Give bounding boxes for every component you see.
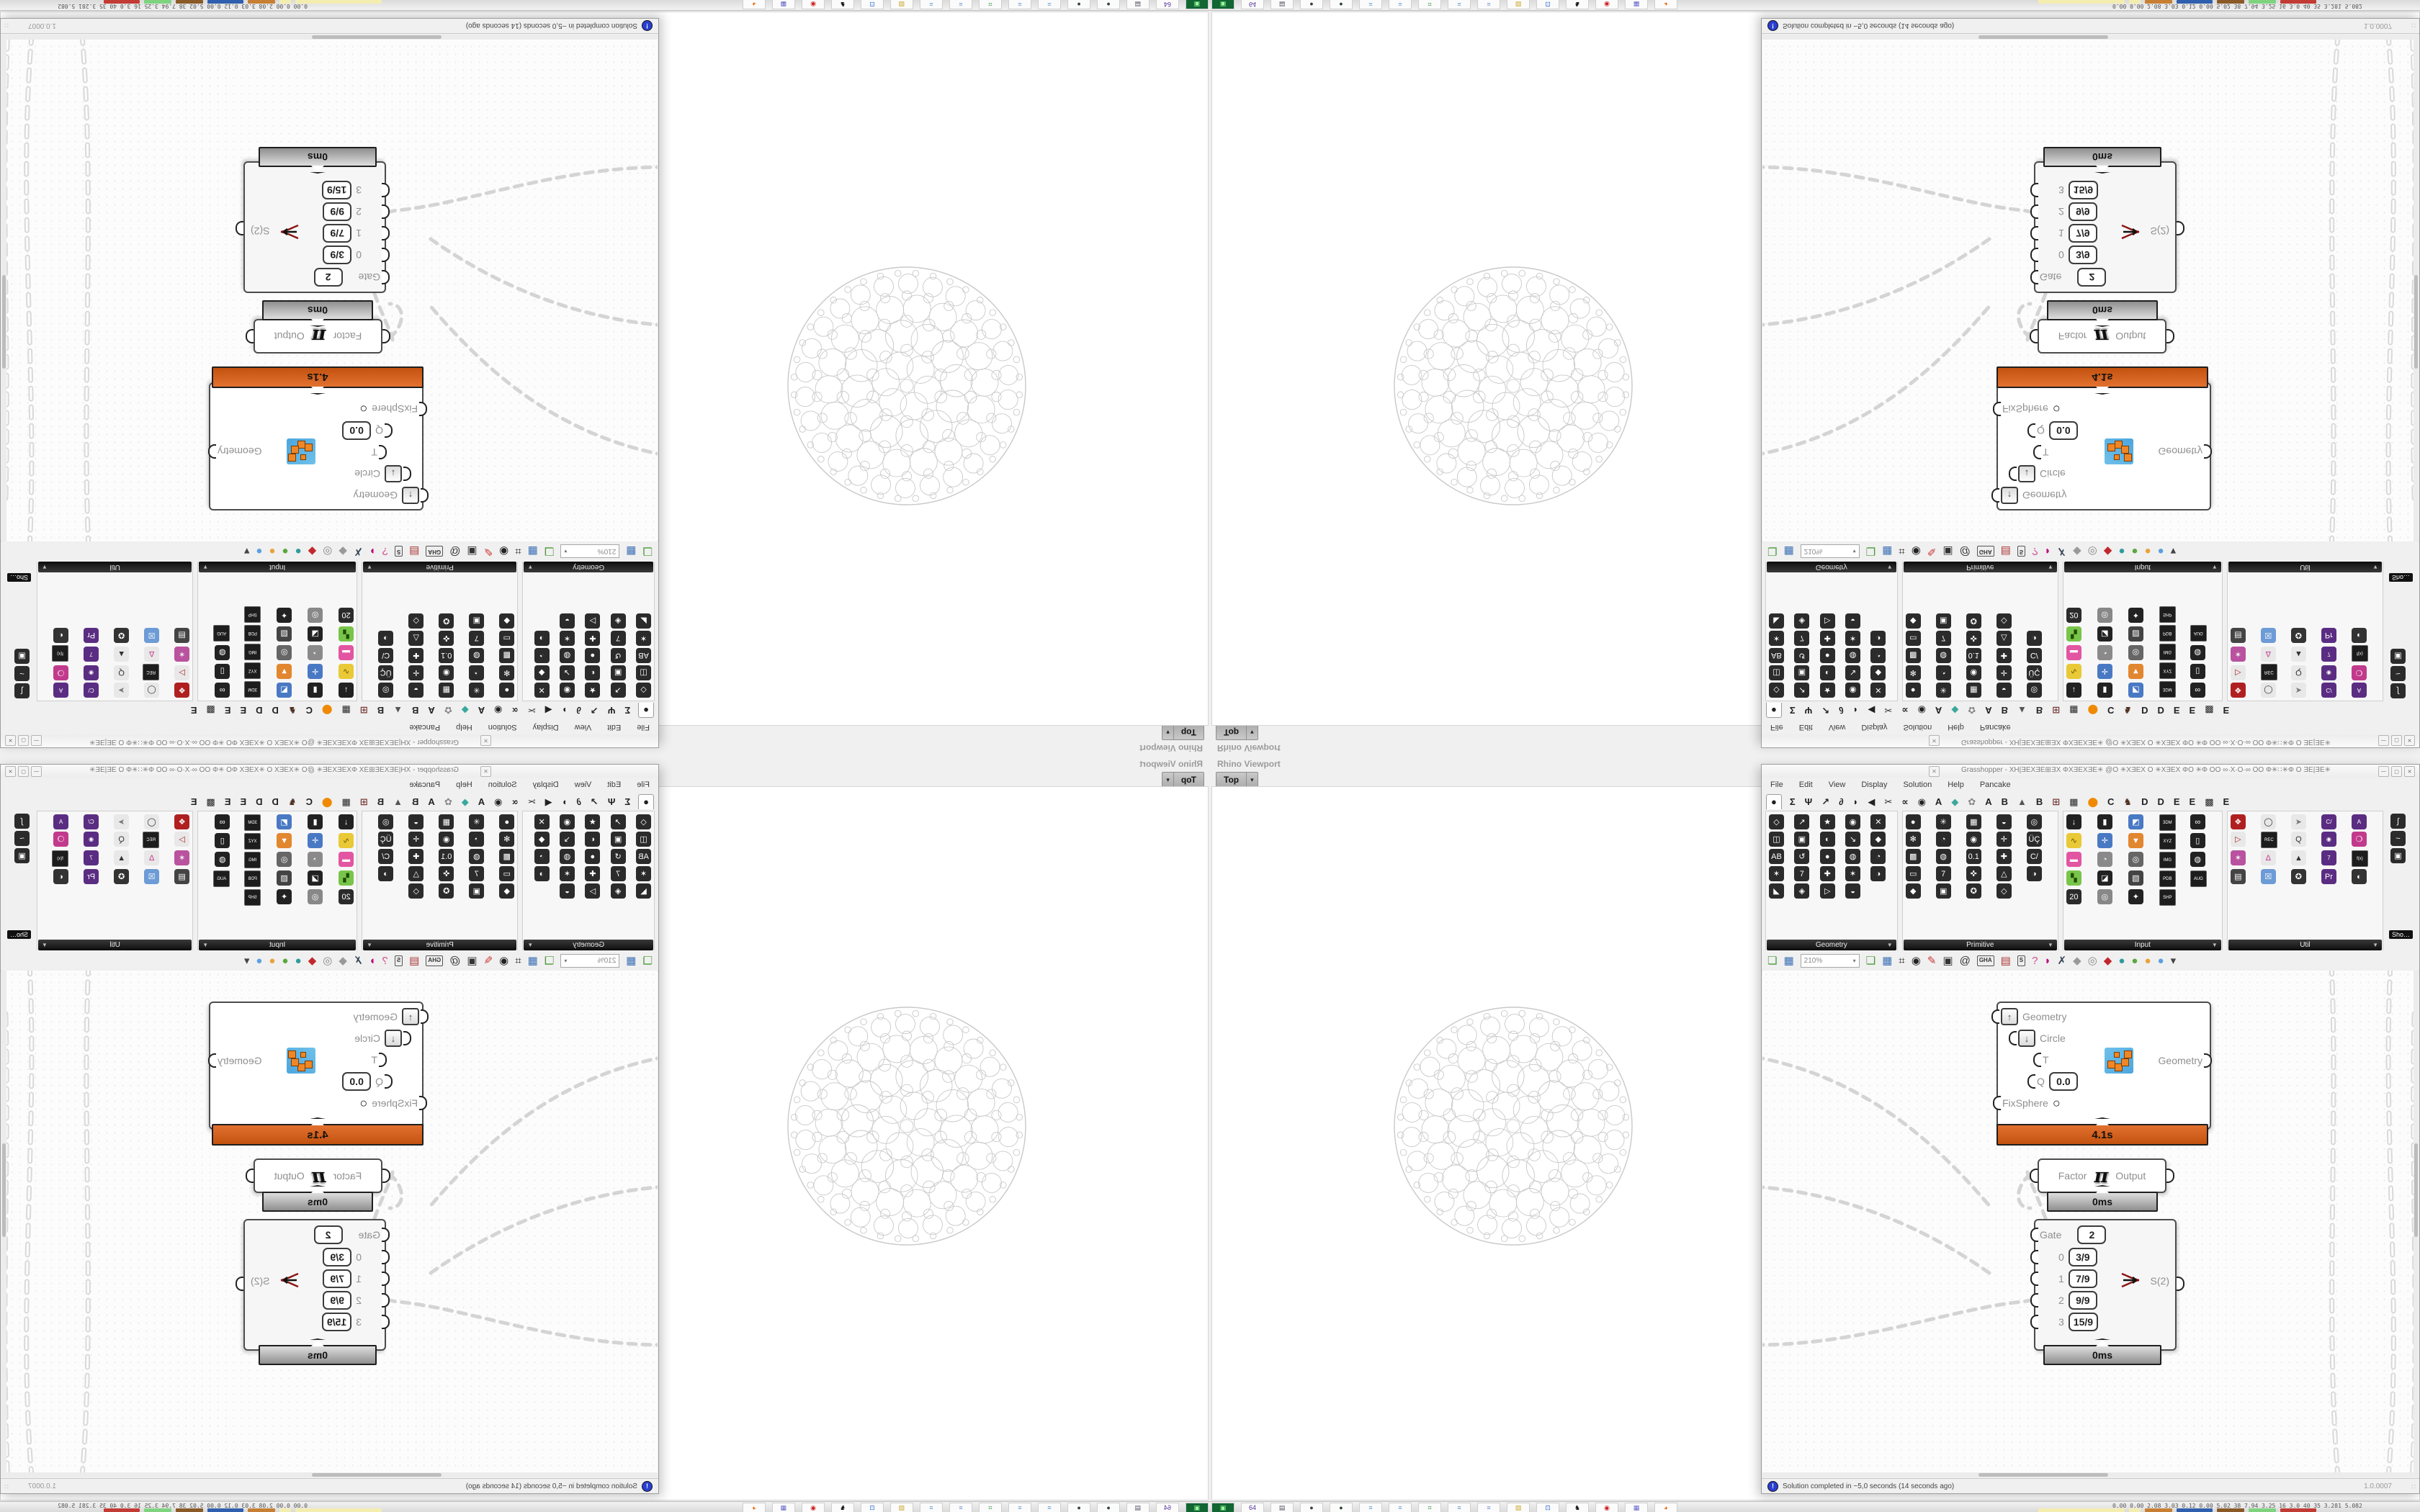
menu-item[interactable]: Solution xyxy=(488,780,517,789)
component-icon[interactable]: ● xyxy=(585,849,600,864)
component-icon[interactable]: Δ xyxy=(2261,647,2276,662)
gate-fraction-box[interactable]: 3/9 xyxy=(323,1248,351,1266)
component-icon[interactable]: ▣ xyxy=(611,832,626,847)
gate-input-row[interactable]: 3 15/9 xyxy=(2058,179,2175,201)
component-icon[interactable]: ❖ xyxy=(2231,683,2246,698)
chevron-down-icon[interactable]: ▼ xyxy=(527,564,533,570)
component-icon[interactable]: PDB xyxy=(244,870,261,887)
component-tab[interactable]: B xyxy=(2035,703,2044,717)
component-icon[interactable]: ✻ xyxy=(499,665,514,680)
viewport-tab-label[interactable]: Top xyxy=(1174,727,1204,737)
component-icon[interactable]: ◇ xyxy=(1769,814,1784,829)
taskbar-app-icon[interactable]: ▤ xyxy=(1126,1503,1149,1512)
component-icon[interactable]: ◉ xyxy=(439,832,454,847)
component-tab[interactable]: ◉ xyxy=(493,795,503,809)
component-icon[interactable]: ◫ xyxy=(636,665,651,680)
component-icon[interactable]: ∫ xyxy=(2390,683,2406,698)
component-icon[interactable]: ▚ xyxy=(2066,870,2081,886)
component-icon[interactable]: ✶ xyxy=(1769,631,1784,646)
taskbar-app-icon[interactable]: ▨ xyxy=(1507,0,1530,9)
gate-input-row[interactable]: 3 15/9 xyxy=(245,1311,362,1333)
taskbar-app-icon[interactable]: ▦ xyxy=(1625,0,1648,9)
component-icon[interactable]: 7 xyxy=(2321,647,2336,662)
palette-footer[interactable]: Geometry ▼ xyxy=(524,562,653,572)
chevron-down-icon[interactable]: ▼ xyxy=(1887,564,1893,570)
component-icon[interactable]: ~ xyxy=(14,831,30,846)
component-tab[interactable]: ▲ xyxy=(392,795,404,809)
toolbar-icon[interactable]: ✗ xyxy=(354,546,363,557)
output-socket[interactable] xyxy=(208,1053,216,1068)
gate-header-row[interactable]: Gate 2 xyxy=(2040,266,2175,289)
component-icon[interactable]: ◔ xyxy=(1936,665,1951,680)
component-tab[interactable]: ∂ xyxy=(575,795,582,809)
taskbar-app-icon[interactable]: ◕ xyxy=(743,1503,766,1512)
menu-item[interactable]: Display xyxy=(1861,723,1887,732)
component-icon[interactable]: ◑ xyxy=(534,866,550,881)
chevron-down-icon[interactable]: ▾ xyxy=(1853,958,1856,964)
component-icon[interactable]: ▦ xyxy=(439,814,454,829)
component-icon[interactable]: ◎ xyxy=(378,683,393,698)
component-icon[interactable]: ▤ xyxy=(2231,628,2246,643)
component-tab[interactable]: ▦ xyxy=(2068,795,2079,809)
component-icon[interactable]: ◍ xyxy=(2190,852,2205,867)
component-tab[interactable]: D xyxy=(2140,795,2149,809)
component-tab[interactable]: ♞ xyxy=(287,703,298,717)
component-icon[interactable]: ✜ xyxy=(1966,631,1981,646)
component-tab[interactable]: D xyxy=(254,703,264,717)
component-icon[interactable]: ◈ xyxy=(611,613,626,629)
component-icon[interactable]: ◫ xyxy=(1769,665,1784,680)
component-tab[interactable]: E xyxy=(2172,795,2182,809)
component-tab[interactable]: A xyxy=(1984,703,1993,717)
component-icon[interactable]: ▤ xyxy=(174,628,189,643)
component-icon[interactable]: ▤ xyxy=(174,869,189,884)
input-socket[interactable] xyxy=(2030,1169,2038,1183)
close-icon[interactable]: ✕ xyxy=(480,735,491,746)
menu-item[interactable]: View xyxy=(575,780,592,789)
viewport-tab-label[interactable]: Top xyxy=(1216,775,1246,785)
input-socket[interactable] xyxy=(2030,204,2038,219)
palette-footer[interactable]: Input ▼ xyxy=(2064,940,2221,950)
component-icon[interactable]: XYZ xyxy=(2159,662,2176,679)
component-tab[interactable]: ◉ xyxy=(493,703,503,717)
menu-item[interactable]: Edit xyxy=(607,780,621,789)
component-icon[interactable]: 0.1 xyxy=(439,648,454,663)
maximize-icon[interactable]: ▢ xyxy=(18,735,29,746)
component-icon[interactable]: ▷ xyxy=(174,665,189,680)
taskbar-app-icon[interactable]: ⌗ xyxy=(979,0,1002,9)
toolbar-icon[interactable]: GHA xyxy=(1977,955,1994,966)
component-icon[interactable]: ✶ xyxy=(636,866,651,881)
toolbar-icon[interactable]: ● xyxy=(256,546,262,557)
taskbar-app-icon[interactable]: ♞ xyxy=(831,1503,854,1512)
input-socket[interactable] xyxy=(2009,1031,2017,1045)
toolbar-icon[interactable]: ? xyxy=(382,955,388,966)
taskbar-app-icon[interactable]: ● xyxy=(1330,0,1353,9)
component-input-row[interactable]: FixSphere ○ xyxy=(2002,1092,2210,1114)
menu-item[interactable]: Solution xyxy=(1903,780,1932,789)
toolbar-icon[interactable]: @ xyxy=(449,546,460,557)
component-tab[interactable]: E xyxy=(238,703,248,717)
taskbar-app-icon[interactable]: ◕ xyxy=(1654,1503,1677,1512)
component-tab[interactable]: B xyxy=(2000,795,2009,809)
component-output-row[interactable]: Geometry xyxy=(218,446,261,457)
component-icon[interactable]: ✻ xyxy=(1906,832,1921,847)
component-icon[interactable]: AUG xyxy=(2190,625,2207,642)
component-tab[interactable]: ⬤ xyxy=(2086,795,2099,809)
canvas-horizontal-scrollbar[interactable] xyxy=(1762,1472,2419,1477)
taskbar-app-icon[interactable]: 64 xyxy=(1241,1503,1264,1512)
component-icon[interactable]: ◔ xyxy=(469,665,484,680)
component-icon[interactable]: ➤ xyxy=(2291,683,2306,698)
component-icon[interactable]: ▷ xyxy=(174,832,189,847)
component-icon[interactable]: ◍ xyxy=(1845,849,1860,864)
minimize-icon[interactable]: — xyxy=(2378,735,2389,746)
component-icon[interactable]: ◍ xyxy=(560,648,575,663)
zoom-level-select[interactable]: 210% ▾ xyxy=(1801,954,1860,968)
component-tab[interactable]: A xyxy=(1984,795,1993,809)
component-tab[interactable]: ∝ xyxy=(1900,703,1909,717)
menu-item[interactable]: Solution xyxy=(488,723,517,732)
window-buttons[interactable]: —▢✕ xyxy=(2378,735,2415,746)
component-icon[interactable]: ◍ xyxy=(2190,645,2205,660)
component-tab[interactable]: B xyxy=(376,703,385,717)
component-icon[interactable]: ▣ xyxy=(14,649,30,664)
component-tab[interactable]: D xyxy=(254,795,264,809)
save-file-icon[interactable]: ▦ xyxy=(1783,546,1793,557)
toolbar-icon[interactable]: ▦ xyxy=(1882,955,1892,966)
component-icon[interactable]: 20 xyxy=(2066,889,2081,904)
component-icon[interactable]: ◉ xyxy=(1845,683,1860,698)
taskbar-app-icon[interactable]: ● xyxy=(1097,0,1120,9)
component-icon[interactable]: ▷ xyxy=(1820,613,1835,629)
component-icon[interactable]: ∿ xyxy=(339,833,354,848)
component-tab[interactable]: C xyxy=(305,703,314,717)
component-icon[interactable]: ▬ xyxy=(2066,645,2081,660)
palette-footer[interactable]: Geometry ▼ xyxy=(1767,940,1896,950)
taskbar-app-icon[interactable]: ≡ xyxy=(1359,0,1382,9)
component-icon[interactable]: ☒ xyxy=(144,869,159,884)
toolbar-icon[interactable]: ✎ xyxy=(1927,546,1937,557)
component-icon[interactable]: ▣ xyxy=(2390,848,2406,863)
component-tab[interactable]: ▲ xyxy=(2016,795,2028,809)
component-tab[interactable]: E xyxy=(2172,703,2182,717)
component-icon[interactable]: ▚ xyxy=(2066,626,2081,642)
menu-item[interactable]: Help xyxy=(1948,723,1964,732)
menu-item[interactable]: Display xyxy=(533,723,559,732)
close-icon[interactable]: ✕ xyxy=(2404,735,2415,746)
taskbar-app-icon[interactable]: ▦ xyxy=(772,1503,795,1512)
component-icon[interactable]: ◑ xyxy=(2027,866,2042,881)
gate-fraction-box[interactable]: 7/9 xyxy=(323,224,351,243)
toolbar-icon[interactable]: ✎ xyxy=(484,546,493,557)
component-icon[interactable]: ◎ xyxy=(378,814,393,829)
component-icon[interactable]: C/ xyxy=(378,648,393,663)
viewport-tab-top[interactable]: Top ▾ xyxy=(1216,724,1258,740)
component-icon[interactable]: 7 xyxy=(1794,631,1809,646)
component-icon[interactable]: ✚ xyxy=(408,648,423,663)
zoom-level-select[interactable]: 210% ▾ xyxy=(560,545,619,559)
menu-item[interactable]: Solution xyxy=(1903,723,1932,732)
taskbar-app-icon[interactable]: ▦ xyxy=(1625,1503,1648,1512)
component-icon[interactable]: SHP xyxy=(2159,606,2176,623)
component-icon[interactable]: ◆ xyxy=(534,832,550,847)
component-icon[interactable]: ◔ xyxy=(534,849,550,864)
component-tab[interactable]: A xyxy=(1934,795,1943,809)
component-icon[interactable]: ↘ xyxy=(560,665,575,680)
component-icon[interactable]: ✛ xyxy=(308,833,323,848)
component-icon[interactable]: ◐ xyxy=(1820,665,1835,680)
component-icon[interactable]: ✚ xyxy=(585,866,600,881)
component-icon[interactable]: ◑ xyxy=(2027,631,2042,646)
component-icon[interactable]: ▣ xyxy=(1936,883,1951,899)
component-icon[interactable]: △ xyxy=(408,631,423,646)
toolbar-icon[interactable]: ▤ xyxy=(409,546,419,557)
gate-value-box[interactable]: 2 xyxy=(2077,1225,2106,1244)
component-icon[interactable]: ~ xyxy=(2390,831,2406,846)
input-socket[interactable] xyxy=(2030,1228,2038,1242)
toolbar-icon[interactable]: ▦ xyxy=(1882,546,1892,557)
component-icon[interactable]: ▲ xyxy=(2291,850,2306,865)
component-icon[interactable]: IMG xyxy=(2159,852,2176,868)
component-icon[interactable]: 7 xyxy=(1794,866,1809,881)
gate-fraction-box[interactable]: 3/9 xyxy=(2069,1248,2097,1266)
component-icon[interactable]: 3DM xyxy=(2159,681,2176,698)
chevron-down-icon[interactable]: ▾ xyxy=(1853,549,1856,555)
component-icon[interactable]: ◔ xyxy=(308,645,323,660)
input-socket[interactable] xyxy=(1993,402,2001,416)
taskbar-app-icon[interactable]: ≡ xyxy=(1038,1503,1061,1512)
component-icon[interactable]: ● xyxy=(1820,849,1835,864)
taskbar-app-icon[interactable]: ≡ xyxy=(1477,0,1500,9)
input-socket[interactable] xyxy=(2030,183,2038,197)
component-tab[interactable]: Ψ xyxy=(1803,795,1814,809)
toolbar-icon[interactable]: ? xyxy=(382,546,388,557)
toolbar-icon[interactable]: ◆ xyxy=(2104,955,2112,966)
component-icon[interactable]: ✕ xyxy=(534,814,550,829)
component-icon[interactable]: ◉ xyxy=(439,665,454,680)
toolbar-icon[interactable]: ◎ xyxy=(2088,546,2097,557)
save-file-icon[interactable]: ▦ xyxy=(1783,955,1793,966)
toolbar-icon[interactable]: ✗ xyxy=(2058,955,2067,966)
component-icon[interactable]: Q xyxy=(2291,665,2306,680)
component-icon[interactable]: ↺ xyxy=(1794,849,1809,864)
grasshopper-titlebar[interactable]: ✕ Grasshopper - XH|ƎEXƎE⊞ƎX ΦXƎEXƎE✳ @O … xyxy=(1762,734,2419,747)
viewport-tab-top[interactable]: Top ▾ xyxy=(1162,724,1204,740)
component-icon[interactable]: ▯ xyxy=(2190,664,2205,679)
taskbar-app-icon[interactable]: ▤ xyxy=(1270,0,1294,9)
toolbar-icon[interactable]: ● xyxy=(2118,955,2125,966)
component-icon[interactable]: ▷ xyxy=(2231,665,2246,680)
component-icon[interactable]: ◆ xyxy=(534,665,550,680)
component-icon[interactable]: AB xyxy=(636,849,651,864)
gh-canvas[interactable]: ↑ Geometry ↓ Circle xyxy=(1762,971,2419,1477)
component-icon[interactable]: ✜ xyxy=(1966,866,1981,881)
menu-item[interactable]: File xyxy=(1770,723,1783,732)
component-icon[interactable]: ✦ xyxy=(277,608,292,623)
component-icon[interactable]: ✳ xyxy=(1936,683,1951,698)
component-icon[interactable]: ◩ xyxy=(2128,814,2143,829)
component-icon[interactable]: ◪ xyxy=(308,626,323,642)
component-icon[interactable]: ▼ xyxy=(277,833,292,848)
gate-fraction-box[interactable]: 15/9 xyxy=(2069,1313,2098,1331)
taskbar-app-icon[interactable]: ▣ xyxy=(1211,1503,1234,1512)
taskbar-app-icon[interactable]: 64 xyxy=(1156,1503,1179,1512)
graft-arrow-icon[interactable]: ↑ xyxy=(402,1008,419,1025)
taskbar-app-icon[interactable]: ≡ xyxy=(1477,1503,1500,1512)
chevron-down-icon[interactable]: ▼ xyxy=(367,564,372,570)
component-icon[interactable]: ❖ xyxy=(174,814,189,829)
component-icon[interactable]: ◐ xyxy=(2352,628,2367,643)
component-tab[interactable]: E xyxy=(189,703,199,717)
component-icon[interactable]: ↘ xyxy=(1845,832,1860,847)
canvas-vertical-scrollbar[interactable] xyxy=(2414,971,2419,1477)
component-tab[interactable]: ⊞ xyxy=(2051,795,2061,809)
input-socket[interactable] xyxy=(2030,1250,2038,1264)
component-tab[interactable]: C xyxy=(2106,703,2115,717)
taskbar-app-icon[interactable]: ⌗ xyxy=(1418,0,1441,9)
component-icon[interactable]: ↓ xyxy=(2066,683,2081,698)
component-icon[interactable]: ✳ xyxy=(1936,814,1951,829)
resize-grip[interactable]: ∷ xyxy=(4,21,9,29)
component-tab[interactable]: B xyxy=(376,795,385,809)
toolbar-icon[interactable]: S xyxy=(395,546,403,557)
component-icon[interactable]: ◇ xyxy=(636,814,651,829)
component-icon[interactable]: 20 xyxy=(339,608,354,623)
component-icon[interactable]: ↓ xyxy=(339,814,354,829)
component-icon[interactable]: ▩ xyxy=(1906,849,1921,864)
toolbar-icon[interactable]: ⌗ xyxy=(515,955,521,966)
component-icon[interactable]: ÜÇ xyxy=(378,665,393,680)
component-icon[interactable]: ✻ xyxy=(1906,665,1921,680)
component-icon[interactable]: ◆ xyxy=(1870,832,1886,847)
component-icon[interactable]: ★ xyxy=(585,683,600,698)
component-tab[interactable]: ⬤ xyxy=(2086,703,2099,717)
component-icon[interactable]: ▣ xyxy=(611,665,626,680)
component-tab[interactable]: ⊞ xyxy=(359,703,369,717)
component-icon[interactable]: f(x) xyxy=(2352,645,2368,662)
component-icon[interactable]: Pr xyxy=(2321,628,2336,643)
input-socket[interactable] xyxy=(2030,1272,2038,1286)
input-socket[interactable] xyxy=(2030,248,2038,262)
taskbar-app-icon[interactable]: ◉ xyxy=(1595,1503,1618,1512)
component-icon[interactable]: ✛ xyxy=(2097,833,2112,848)
component-tab[interactable]: ⊞ xyxy=(2051,703,2061,717)
toolbar-icon[interactable]: @ xyxy=(1960,955,1971,966)
gate-fraction-box[interactable]: 15/9 xyxy=(322,1313,351,1331)
component-icon[interactable]: ▭ xyxy=(499,866,514,881)
toolbar-icon[interactable]: ▾ xyxy=(2171,955,2177,966)
gate-fraction-box[interactable]: 9/9 xyxy=(323,1291,351,1310)
component-icon[interactable]: ▣ xyxy=(14,848,30,863)
toolbar-icon[interactable]: ● xyxy=(2158,955,2164,966)
component-icon[interactable]: Δ xyxy=(144,647,159,662)
gh-canvas[interactable]: ↑ Geometry ↓ Circle xyxy=(1762,35,2419,541)
toolbar-icon[interactable]: ● xyxy=(295,546,302,557)
component-icon[interactable]: ◑ xyxy=(378,631,393,646)
chevron-down-icon[interactable]: ▾ xyxy=(564,549,567,555)
component-icon[interactable]: ✶ xyxy=(1769,866,1784,881)
taskbar-app-icon[interactable]: ⊡ xyxy=(1536,1503,1559,1512)
component-icon[interactable]: ◒ xyxy=(560,613,575,629)
component-icon[interactable]: ◣ xyxy=(636,883,651,899)
component-tab[interactable]: ◗ xyxy=(560,703,569,717)
component-icon[interactable]: ▼ xyxy=(277,664,292,679)
toolbar-icon[interactable]: ▣ xyxy=(467,546,477,557)
component-output-row[interactable]: Geometry xyxy=(2159,1055,2202,1066)
output-socket[interactable] xyxy=(246,1169,254,1183)
maximize-icon[interactable]: ▢ xyxy=(2391,735,2402,746)
component-icon[interactable]: ▩ xyxy=(499,849,514,864)
component-tab[interactable]: ⊞ xyxy=(359,795,369,809)
gate-input-row[interactable]: 0 3/9 xyxy=(245,244,362,266)
component-tab[interactable]: ◀ xyxy=(544,703,554,717)
component-icon[interactable]: ✳ xyxy=(469,683,484,698)
component-icon[interactable]: ◇ xyxy=(636,683,651,698)
component-tab[interactable]: ✿ xyxy=(1966,703,1977,717)
component-icon[interactable]: ✦ xyxy=(277,889,292,904)
component-icon[interactable]: △ xyxy=(1996,866,2012,881)
component-icon[interactable]: ∞ xyxy=(2190,683,2205,698)
canvas-horizontal-scrollbar[interactable] xyxy=(1762,35,2419,40)
component-icon[interactable]: 0.1 xyxy=(1966,849,1981,864)
toolbar-icon[interactable]: ▾ xyxy=(244,955,250,966)
toolbar-icon[interactable]: @ xyxy=(449,955,460,966)
component-icon[interactable]: ◯ xyxy=(144,814,159,829)
close-icon[interactable]: ✕ xyxy=(1929,766,1940,777)
component-icon[interactable]: ◣ xyxy=(636,613,651,629)
menu-item[interactable]: Edit xyxy=(607,723,621,732)
component-icon[interactable]: ❖ xyxy=(174,683,189,698)
component-icon[interactable]: ↘ xyxy=(560,832,575,847)
gate-input-row[interactable]: 3 15/9 xyxy=(2058,1311,2175,1333)
component-icon[interactable]: IMG xyxy=(244,852,261,868)
component-icon[interactable]: ▯ xyxy=(215,833,230,848)
component-icon[interactable]: ✪ xyxy=(439,883,454,899)
component-tab[interactable]: E xyxy=(223,795,233,809)
taskbar-app-icon[interactable]: ⌗ xyxy=(1418,1503,1441,1512)
save-file-icon[interactable]: ▦ xyxy=(626,546,636,557)
stream-gate-component[interactable]: Gate 2 0 3/9 1 7/9 xyxy=(2034,161,2177,293)
graft-arrow-icon[interactable]: ↓ xyxy=(385,465,402,482)
component-icon[interactable]: Δ xyxy=(144,850,159,865)
component-icon[interactable]: ▣ xyxy=(2390,649,2406,664)
component-icon[interactable]: ∫ xyxy=(2390,814,2406,829)
component-tab[interactable]: ♞ xyxy=(2122,795,2133,809)
component-icon[interactable]: ∞ xyxy=(215,814,230,829)
toolbar-icon[interactable]: ◆ xyxy=(339,546,347,557)
component-icon[interactable]: ◔ xyxy=(1870,648,1886,663)
component-icon[interactable]: C/ xyxy=(2027,849,2042,864)
taskbar-app-icon[interactable]: ≡ xyxy=(1038,0,1061,9)
component-icon[interactable]: ▤ xyxy=(2231,869,2246,884)
component-tab[interactable]: ∝ xyxy=(510,703,519,717)
component-icon[interactable]: ◍ xyxy=(1936,849,1951,864)
chevron-down-icon[interactable]: ▼ xyxy=(202,564,208,570)
component-icon[interactable]: ▬ xyxy=(2066,852,2081,867)
toolbar-icon[interactable]: ◗ xyxy=(369,546,375,557)
component-tab[interactable]: ∝ xyxy=(510,795,519,809)
component-tab[interactable]: D xyxy=(271,703,280,717)
input-socket[interactable] xyxy=(2033,1053,2041,1067)
component-icon[interactable]: ◪ xyxy=(2097,870,2112,886)
toolbar-icon[interactable]: ❏ xyxy=(1866,955,1875,966)
component-icon[interactable]: ◎ xyxy=(2128,852,2143,867)
component-icon[interactable]: 0.1 xyxy=(439,849,454,864)
palette-footer[interactable]: Geometry ▼ xyxy=(524,940,653,950)
menu-item[interactable]: Display xyxy=(533,780,559,789)
component-tab[interactable]: ⬤ xyxy=(321,795,334,809)
